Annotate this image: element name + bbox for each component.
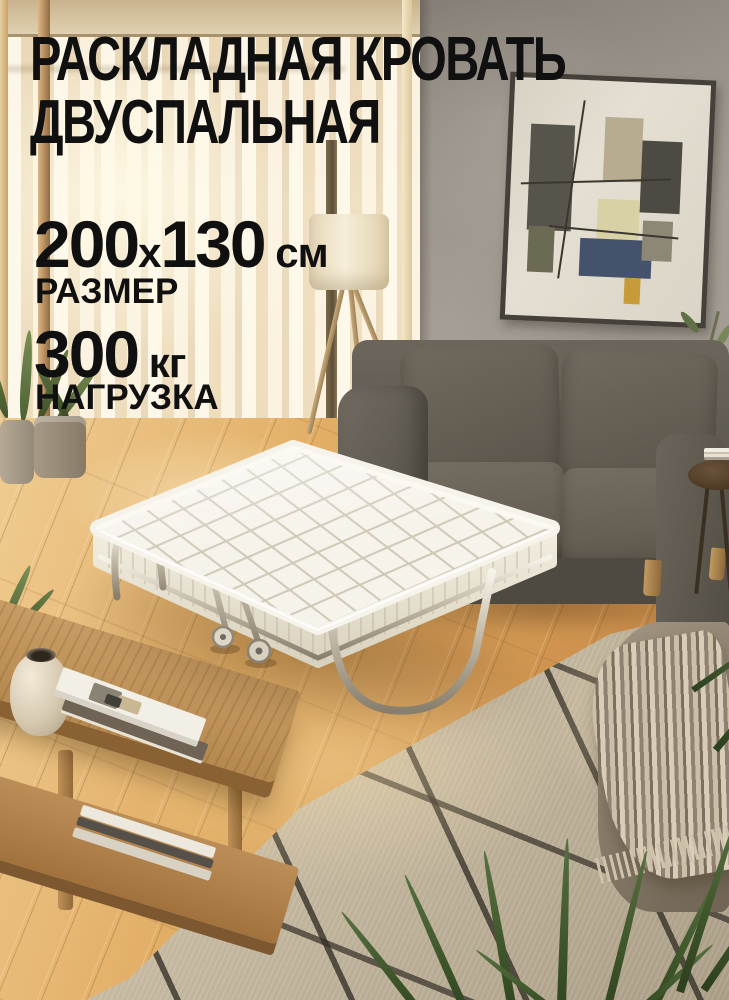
window-light-glow	[20, 70, 280, 370]
painting-block-green	[527, 226, 555, 273]
sofa-leg	[643, 560, 662, 597]
side-table-books	[704, 448, 729, 460]
painting-block-slate	[639, 140, 682, 214]
caster-hub	[256, 648, 263, 655]
folding-bed	[55, 425, 615, 745]
plant-pot	[0, 420, 34, 484]
ceiling-strip	[0, 0, 420, 37]
lamp-shade	[309, 214, 389, 290]
sofa-leg	[709, 547, 727, 580]
painting-block-tan	[603, 117, 644, 183]
window-mullion	[326, 140, 337, 452]
painting-block-gray	[641, 221, 673, 262]
curtain-rail-shadow	[0, 66, 345, 72]
painting-block-ochre	[623, 278, 640, 305]
painting-block-yellow	[596, 199, 640, 245]
vase-mouth	[26, 648, 56, 662]
product-photo-banner: РАСКЛАДНАЯ КРОВАТЬ ДВУСПАЛЬНАЯ 200х130 с…	[0, 0, 729, 1000]
abstract-painting	[500, 72, 717, 329]
caster-hub	[220, 634, 226, 640]
